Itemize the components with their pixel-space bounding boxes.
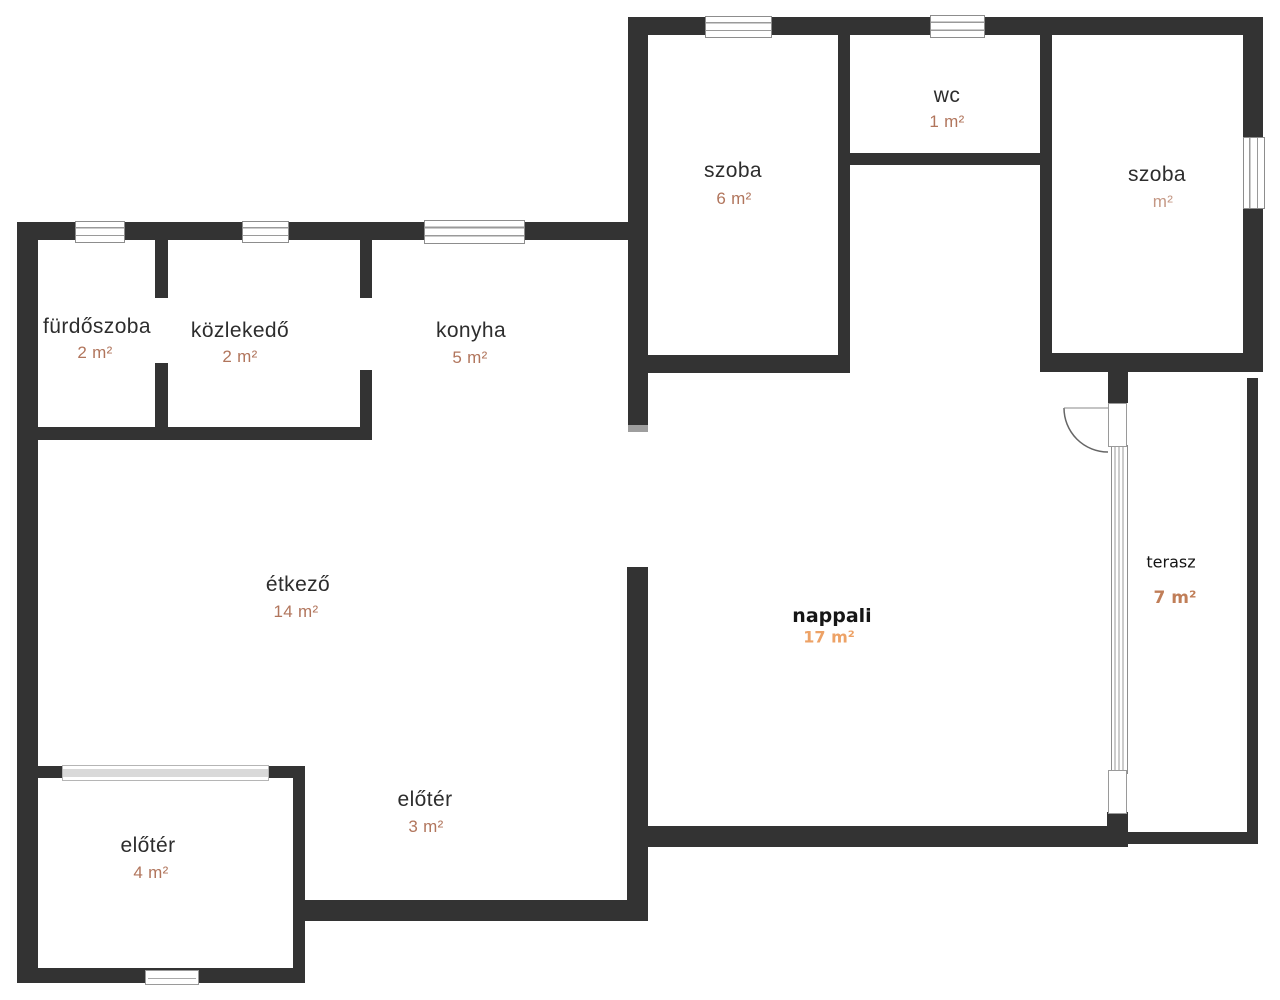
window-szoba6 [705,16,772,38]
room-area-szoba-6: 6 m² [716,189,751,209]
window-eloter4-long [62,765,269,781]
wall-wc-bottom [838,153,1052,165]
room-name-furdoszoba: fürdőszoba [43,315,151,339]
room-name-eloter-3: előtér [398,788,453,812]
wall-eloter4-right [293,766,305,983]
floor-plan: fürdőszoba 2 m² közlekedő 2 m² konyha 5 … [0,0,1280,1000]
wall-wc-trszoba-divider [1040,35,1052,353]
wall-nappali-left [627,567,648,921]
wall-szoba6-bottom [648,355,850,373]
room-name-konyha: konyha [436,319,506,343]
room-area-szoba-tr: m² [1153,192,1173,212]
wall-hall-konyha-divider-bottom [360,370,372,427]
wall-trszoba-right-top [1243,35,1263,137]
room-name-wc: wc [934,84,960,108]
wall-terrace-bottom-stub [1107,812,1128,847]
wall-bath-hall-bottom [38,427,372,440]
room-name-kozlekedo: közlekedő [191,319,289,343]
room-area-wc: 1 m² [929,112,964,132]
window-trszoba [1243,137,1265,209]
wall-nappali-bottom [648,826,1128,847]
room-area-kozlekedo: 2 m² [222,347,257,367]
room-area-etkezo: 14 m² [274,602,319,622]
wall-trszoba-bottom [1040,353,1263,372]
wall-szoba6-wc-divider [838,35,850,355]
window-konyha [424,220,525,244]
room-area-furdoszoba: 2 m² [77,343,112,363]
room-area-terasz: 7 m² [1154,588,1197,608]
wall-bath-divider-top [155,240,168,298]
wall-terrace-door-stub [1108,372,1128,403]
room-name-szoba-6: szoba [704,159,762,183]
room-area-nappali: 17 m² [803,628,855,647]
room-name-nappali: nappali [792,605,871,627]
wall-szoba6-left-end-bevel [628,425,648,432]
room-area-eloter-4: 4 m² [133,863,168,883]
wall-trszoba-right-bottom [1243,207,1263,372]
room-name-eloter-4: előtér [121,834,176,858]
wall-bath-divider-bottom [155,363,168,427]
terrace-door-leaf-bottom [1108,770,1127,814]
room-name-etkezo: étkező [266,573,330,597]
room-name-szoba-tr: szoba [1128,163,1186,187]
window-furdoszoba [75,221,125,243]
terrace-glass-wall [1111,445,1128,774]
window-kozlekedo [242,221,289,243]
terrace-door-leaf-top [1108,403,1127,447]
room-area-eloter-3: 3 m² [408,817,443,837]
window-wc [930,15,985,38]
wall-terrace-bottom [1128,832,1258,844]
wall-terrace-right [1247,378,1258,838]
window-eloter4-small [145,970,199,985]
room-name-terasz: terasz [1146,553,1195,572]
wall-left-outer [17,222,38,983]
wall-eloter3-bottom [302,900,648,921]
room-area-konyha: 5 m² [452,348,487,368]
wall-hall-konyha-divider-top [360,240,372,298]
